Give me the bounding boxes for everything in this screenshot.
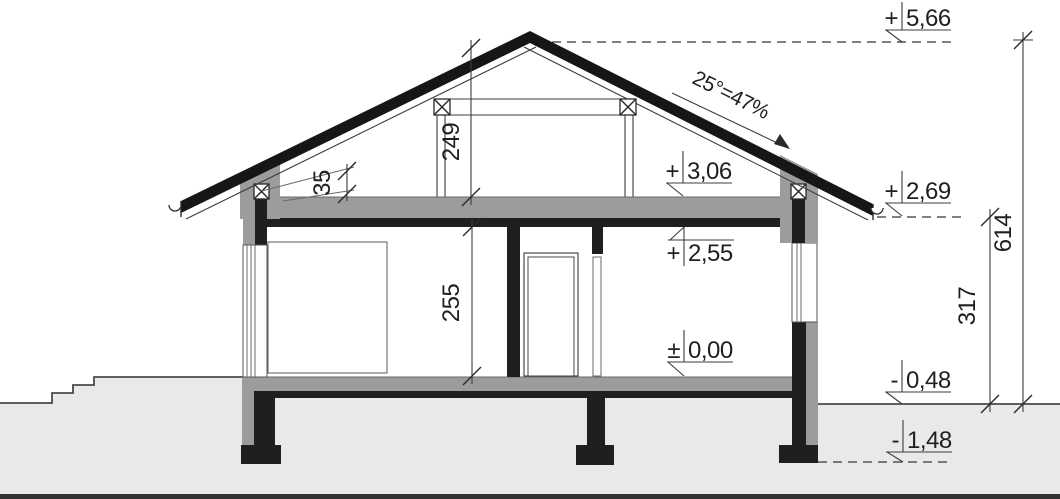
level-marker-eave: + 2,69 bbox=[884, 171, 951, 216]
level-eave-sign: + bbox=[884, 178, 898, 205]
middle-footing bbox=[576, 445, 614, 465]
drawing-canvas: 25°=47% 249 255 35 317 614 bbox=[0, 0, 1060, 499]
dim-knee-wall: 35 bbox=[309, 170, 336, 196]
right-purlin bbox=[620, 99, 636, 115]
left-gutter bbox=[169, 205, 181, 211]
left-purlin bbox=[434, 99, 450, 115]
partition-opening-jamb bbox=[593, 257, 601, 376]
ceiling-slab-soffit-layer bbox=[255, 218, 792, 227]
ceiling-slab-concrete bbox=[267, 197, 780, 218]
level-foundation-sign: - bbox=[892, 427, 900, 454]
floor-slab bbox=[253, 377, 807, 398]
floor-slab-structure bbox=[255, 391, 807, 398]
level-ridge-sign: + bbox=[884, 5, 898, 32]
level-eave-value: 2,69 bbox=[906, 178, 951, 205]
ground-bottom-band bbox=[0, 494, 1060, 499]
interior-wall-sectioned bbox=[507, 227, 520, 377]
right-gutter bbox=[871, 208, 883, 214]
partition-header bbox=[592, 227, 603, 254]
level-ceiling-bottom-value: 2,55 bbox=[688, 240, 733, 267]
level-ceiling-top-sign: + bbox=[665, 158, 679, 185]
interior bbox=[268, 227, 603, 377]
right-footing bbox=[779, 445, 818, 463]
right-wall-window bbox=[792, 243, 817, 322]
floor-slab-screed bbox=[253, 377, 807, 391]
level-marker-ridge: + 5,66 bbox=[884, 2, 951, 42]
interior-door bbox=[524, 253, 578, 376]
level-ceiling-top-value: 3,06 bbox=[687, 158, 732, 185]
left-wall-plate bbox=[254, 184, 269, 199]
level-ceiling-bottom-sign: + bbox=[666, 240, 680, 267]
level-floor-sign: ± bbox=[667, 337, 680, 364]
dimension-614: 614 bbox=[990, 31, 1033, 413]
level-marker-ceiling-top: + 3,06 bbox=[665, 151, 732, 196]
level-ground-sign: - bbox=[891, 367, 899, 394]
roof-covering bbox=[181, 31, 873, 216]
left-foundation-wall bbox=[254, 391, 275, 445]
dim-ridge-above-ground: 614 bbox=[990, 214, 1017, 253]
left-rafter-underside bbox=[186, 47, 536, 219]
cross-section-drawing: 25°=47% 249 255 35 317 614 bbox=[0, 0, 1060, 499]
dim-eave-above-ground: 317 bbox=[954, 287, 981, 326]
right-wall-plate bbox=[791, 184, 806, 199]
left-wall-window bbox=[243, 245, 267, 377]
ceiling-slab bbox=[255, 197, 792, 227]
right-wall-outer-layer bbox=[806, 322, 818, 445]
middle-foundation-pier bbox=[587, 398, 605, 445]
level-floor-value: 0,00 bbox=[688, 337, 733, 364]
level-ridge-value: 5,66 bbox=[906, 5, 951, 32]
right-wall-inner-layer bbox=[792, 322, 806, 445]
level-marker-ground: - 0,48 bbox=[885, 360, 951, 404]
back-wall-window bbox=[268, 242, 387, 373]
dim-attic-height: 249 bbox=[438, 123, 465, 162]
level-foundation-value: 1,48 bbox=[907, 427, 952, 454]
dim-room-height: 255 bbox=[438, 284, 465, 323]
roof-slope-label: 25°=47% bbox=[689, 66, 773, 123]
level-marker-ceiling-bottom: + 2,55 bbox=[666, 227, 734, 267]
left-foundation-outer-layer bbox=[242, 377, 254, 445]
dimension-255: 255 bbox=[438, 218, 481, 385]
left-footing bbox=[241, 445, 281, 464]
level-marker-floor: ± 0,00 bbox=[667, 330, 733, 376]
level-ground-value: 0,48 bbox=[906, 367, 951, 394]
